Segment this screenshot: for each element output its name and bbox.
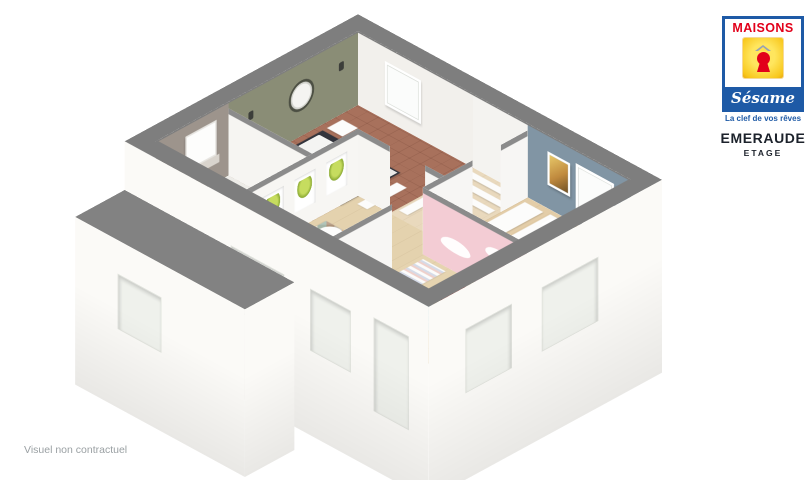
wing-exterior-wall-end (245, 282, 294, 477)
keyhole-icon (743, 38, 783, 78)
model-block: EMERAUDE ETAGE (712, 130, 811, 158)
brand-tagline: La clef de vos rêves (712, 114, 811, 123)
ground-floor-window (310, 288, 351, 372)
ground-floor-window (374, 317, 409, 430)
model-name: EMERAUDE (712, 130, 811, 146)
roof-icon (755, 45, 771, 51)
logo-sesame-text: Sésame (731, 89, 795, 107)
page: MAISONS Sésame La clef de vos rêves EMER… (0, 0, 811, 480)
keyhole-stem (757, 62, 770, 72)
maisons-sesame-logo: MAISONS Sésame (722, 16, 804, 112)
floorplan-3d-scene (0, 0, 811, 480)
ground-floor-window (542, 256, 599, 351)
logo-lower-area: Sésame (725, 87, 801, 109)
logo-maisons-text: MAISONS (732, 21, 793, 35)
disclaimer-text: Visuel non contractuel (24, 444, 127, 456)
wing-window (118, 274, 162, 353)
ground-floor-window (465, 303, 512, 393)
model-level: ETAGE (712, 148, 811, 158)
logo-upper-area: MAISONS (725, 19, 801, 87)
